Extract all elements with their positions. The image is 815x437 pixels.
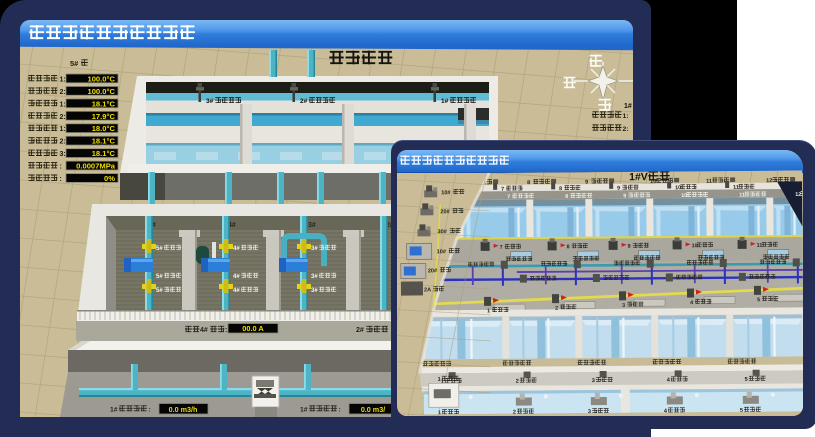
svg-text:3#: 3# <box>311 246 318 252</box>
svg-text:4#: 4# <box>233 246 240 252</box>
svg-text:1:: 1: <box>60 126 66 133</box>
svg-text:3#: 3# <box>308 222 316 229</box>
svg-text:1:: 1: <box>60 76 66 83</box>
svg-text:1#: 1# <box>110 407 118 414</box>
svg-text:2:: 2: <box>60 114 66 121</box>
svg-text:2:: 2: <box>623 126 629 133</box>
svg-text:9: 9 <box>623 193 626 199</box>
svg-text:0%: 0% <box>104 174 115 183</box>
svg-text:3:: 3: <box>60 151 66 158</box>
svg-text:1: 1 <box>487 308 490 314</box>
svg-text:9: 9 <box>585 180 588 186</box>
svg-text:1#V: 1#V <box>629 171 648 183</box>
svg-text:3#: 3# <box>311 288 318 294</box>
svg-text:11: 11 <box>739 192 745 198</box>
svg-text:11: 11 <box>757 243 763 249</box>
svg-text:18.1°C: 18.1°C <box>92 137 116 146</box>
svg-text:4: 4 <box>690 300 693 306</box>
svg-text:8: 8 <box>527 180 530 186</box>
svg-text:5#: 5# <box>156 274 163 280</box>
svg-text:5: 5 <box>757 297 760 303</box>
svg-text:20#: 20# <box>440 209 450 215</box>
svg-text:00.0 A: 00.0 A <box>242 324 264 333</box>
svg-text:2: 2 <box>516 379 519 385</box>
svg-text:2:: 2: <box>60 89 66 96</box>
svg-text:9: 9 <box>628 244 631 250</box>
svg-text:2A: 2A <box>424 287 431 293</box>
svg-text:2#: 2# <box>300 98 308 105</box>
svg-text:7: 7 <box>500 245 503 251</box>
svg-text:4#: 4# <box>233 274 240 280</box>
svg-text::: : <box>149 407 151 414</box>
svg-text:3: 3 <box>622 303 625 309</box>
svg-text:5#: 5# <box>156 288 163 294</box>
svg-text:10: 10 <box>675 185 681 191</box>
svg-text:10: 10 <box>692 243 698 249</box>
svg-text:12: 12 <box>795 192 801 198</box>
svg-text:1: 1 <box>438 377 441 383</box>
svg-text:1:: 1: <box>60 101 66 108</box>
svg-text:4#: 4# <box>233 288 240 294</box>
svg-text:7: 7 <box>501 187 504 193</box>
svg-text::: : <box>60 176 62 183</box>
svg-text:1#: 1# <box>624 103 632 110</box>
svg-text:100.0°C: 100.0°C <box>87 87 115 96</box>
svg-text:8: 8 <box>565 194 568 200</box>
svg-text:0.0 m3/h: 0.0 m3/h <box>169 405 198 414</box>
svg-text:18.0°C: 18.0°C <box>92 124 116 133</box>
svg-text:10#: 10# <box>437 249 447 255</box>
svg-text:1:: 1: <box>623 113 629 120</box>
svg-text:17.9°C: 17.9°C <box>92 112 116 121</box>
svg-text:1#: 1# <box>300 407 308 414</box>
svg-text:5#: 5# <box>156 246 163 252</box>
svg-text:10: 10 <box>650 179 656 185</box>
svg-text:8: 8 <box>559 186 562 192</box>
svg-text::: : <box>60 164 62 171</box>
svg-text::: : <box>339 407 341 414</box>
svg-text:2: 2 <box>555 306 558 312</box>
svg-text:3#: 3# <box>311 274 318 280</box>
svg-text:100.0°C: 100.0°C <box>87 74 115 83</box>
svg-text:10#: 10# <box>441 190 451 196</box>
svg-text:0.0007MPa: 0.0007MPa <box>76 162 116 171</box>
svg-text:20#: 20# <box>428 268 438 274</box>
svg-text:0.0 m3/: 0.0 m3/ <box>361 405 385 414</box>
svg-text:1#: 1# <box>441 98 449 105</box>
svg-text:9: 9 <box>617 186 620 192</box>
svg-text:18.1°C: 18.1°C <box>92 99 116 108</box>
svg-text:3: 3 <box>592 378 595 384</box>
svg-text:11: 11 <box>706 179 712 185</box>
svg-text:2:: 2: <box>60 139 66 146</box>
svg-text:12: 12 <box>766 178 772 184</box>
svg-text:18.1°C: 18.1°C <box>92 149 116 158</box>
svg-text:4#: 4# <box>200 327 208 334</box>
svg-text:3#: 3# <box>206 98 214 105</box>
svg-text:8: 8 <box>567 244 570 250</box>
svg-text:2#: 2# <box>356 327 364 334</box>
svg-text::: : <box>225 327 227 334</box>
svg-text:30#: 30# <box>437 229 447 235</box>
svg-text:7: 7 <box>507 194 510 200</box>
svg-text:5#: 5# <box>70 59 79 68</box>
svg-text:5: 5 <box>745 377 748 383</box>
svg-text:11: 11 <box>733 185 739 191</box>
svg-text:10: 10 <box>681 193 687 199</box>
